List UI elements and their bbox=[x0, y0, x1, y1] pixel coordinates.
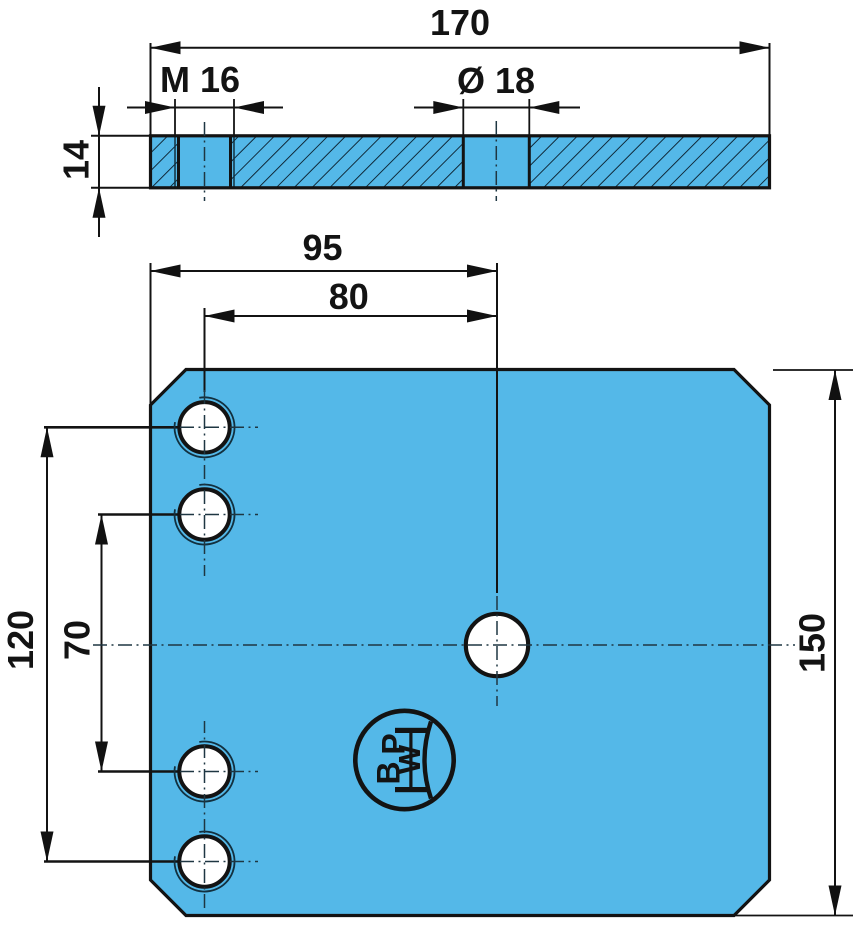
svg-text:120: 120 bbox=[0, 610, 41, 670]
svg-text:Ø 18: Ø 18 bbox=[457, 60, 535, 101]
svg-text:95: 95 bbox=[302, 227, 342, 268]
svg-text:M 16: M 16 bbox=[160, 59, 240, 100]
svg-text:70: 70 bbox=[57, 620, 98, 660]
svg-text:W: W bbox=[392, 744, 427, 774]
svg-text:14: 14 bbox=[56, 140, 97, 180]
svg-text:80: 80 bbox=[329, 276, 369, 317]
svg-text:150: 150 bbox=[792, 613, 833, 673]
svg-text:170: 170 bbox=[430, 2, 490, 43]
